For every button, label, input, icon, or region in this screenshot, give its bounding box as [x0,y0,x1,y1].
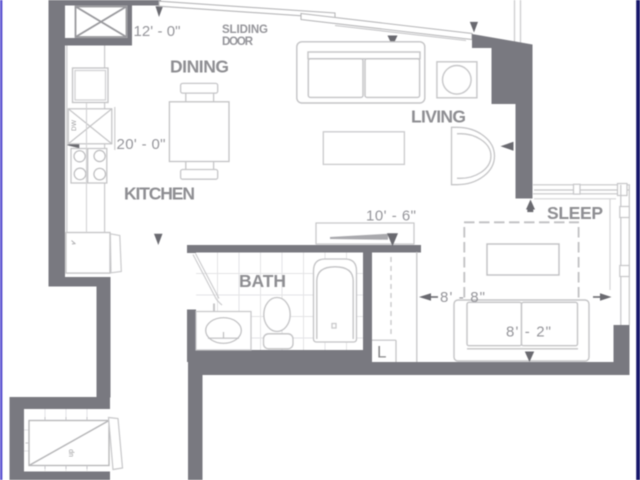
svg-text:DINING: DINING [170,57,229,77]
svg-text:KITCHEN: KITCHEN [124,184,195,204]
svg-text:SLIDING: SLIDING [222,24,268,36]
svg-text:8' - 8": 8' - 8" [440,289,485,306]
svg-text:BATH: BATH [239,271,286,291]
svg-text:SLEEP: SLEEP [547,203,603,223]
svg-text:10' - 6": 10' - 6" [366,208,416,225]
svg-text:LIVING: LIVING [411,107,466,127]
svg-text:8' - 2": 8' - 2" [506,324,551,341]
svg-text:20' - 0": 20' - 0" [117,136,166,153]
svg-text:DW: DW [71,119,78,131]
svg-text:12' - 0": 12' - 0" [134,23,181,40]
svg-text:L: L [377,343,386,362]
svg-text:up: up [68,449,75,457]
svg-text:DOOR: DOOR [222,36,254,48]
